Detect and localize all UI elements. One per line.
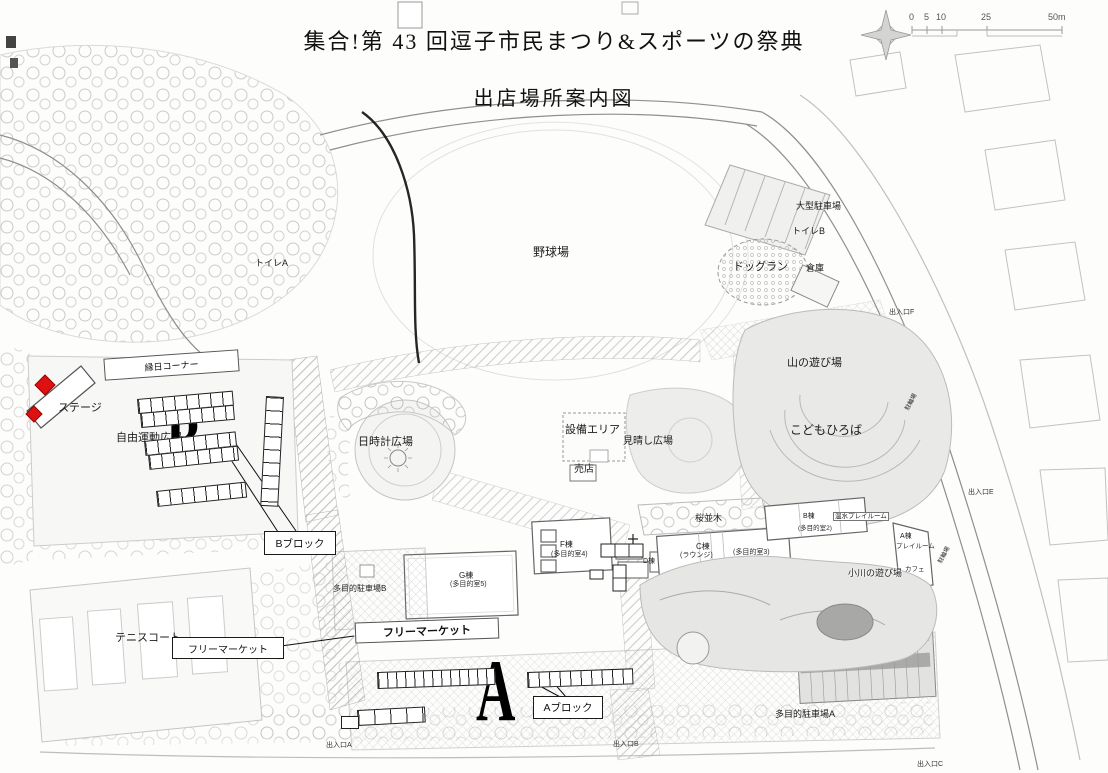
label-stream-play: 小川の遊び場 [848,568,902,578]
label-entrance-e: 出入口E [968,489,994,497]
label-sundial-plaza: 日時計広場 [358,436,413,449]
label-kids-plaza: こどもひろば [790,424,862,438]
label-cafe: カフェ [905,566,925,573]
label-toilet-b: トイレB [792,226,825,236]
label-parking-a: 多目的駐車場A [775,709,835,719]
page-title: 集合!第 43 回逗子市民まつり&スポーツの祭典 [0,24,1108,56]
scale-tick-0: 0 [909,12,914,22]
label-entrance-a: 出入口A [326,742,352,750]
label-building-f: F棟 [560,540,573,549]
label-building-b: B棟 [803,513,815,521]
label-warehouse: 倉庫 [806,263,824,273]
label-building-f-sub: (多目的室4) [551,551,588,559]
label-large-parking: 大型駐車場 [796,201,841,211]
label-warm-playroom: 温水プレイルーム [833,512,889,521]
scanned-park-basemap [0,0,1108,773]
label-building-a: A棟 [900,533,912,541]
label-lookout-plaza: 見晴し広場 [623,436,673,448]
kids-plaza-area [733,309,952,525]
label-mountain-play: 山の遊び場 [787,357,842,370]
a-block-callout: Aブロック [533,696,603,719]
label-building-d: D棟 [643,558,655,566]
scale-tick-10: 10 [936,12,946,22]
scale-tick-25: 25 [981,12,991,22]
label-entrance-c: 出入口C [917,761,943,769]
label-building-b-sub: (多目的室2) [798,525,832,532]
block-a-letter: A [476,648,515,736]
label-building-a-sub: プレイルーム [896,543,935,550]
label-baseball-field: 野球場 [533,246,569,260]
label-building-c: C棟 [696,542,710,551]
label-shop: 売店 [574,464,594,476]
flea-market-callout: フリーマーケット [172,637,284,659]
b-block-callout: Bブロック [264,531,336,555]
a-block-stall-single [341,716,359,729]
scale-tick-50m: 50m [1048,12,1066,22]
label-equipment-area: 設備エリア [565,424,620,437]
label-entrance-f: 出入口F [889,309,914,317]
label-cherry-row: 桜並木 [695,513,722,523]
label-entrance-b: 出入口B [613,741,639,749]
label-stage: ステージ [58,402,102,415]
label-toilet-a: トイレA [255,258,288,268]
label-parking-b: 多目的駐車場B [333,584,386,593]
label-building-c-lounge: (ラウンジ) [680,552,713,560]
label-dog-run: ドッグラン [733,261,788,274]
label-building-g-sub: (多目的室5) [450,581,487,589]
page-subtitle: 出店場所案内図 [0,82,1108,111]
cross-mark [628,534,638,544]
label-building-c-sub: (多目的室3) [733,549,770,557]
festival-map-page: 集合!第 43 回逗子市民まつり&スポーツの祭典 出店場所案内図 0 5 10 … [0,0,1108,773]
label-building-g: G棟 [459,571,473,580]
scale-tick-5: 5 [924,12,929,22]
